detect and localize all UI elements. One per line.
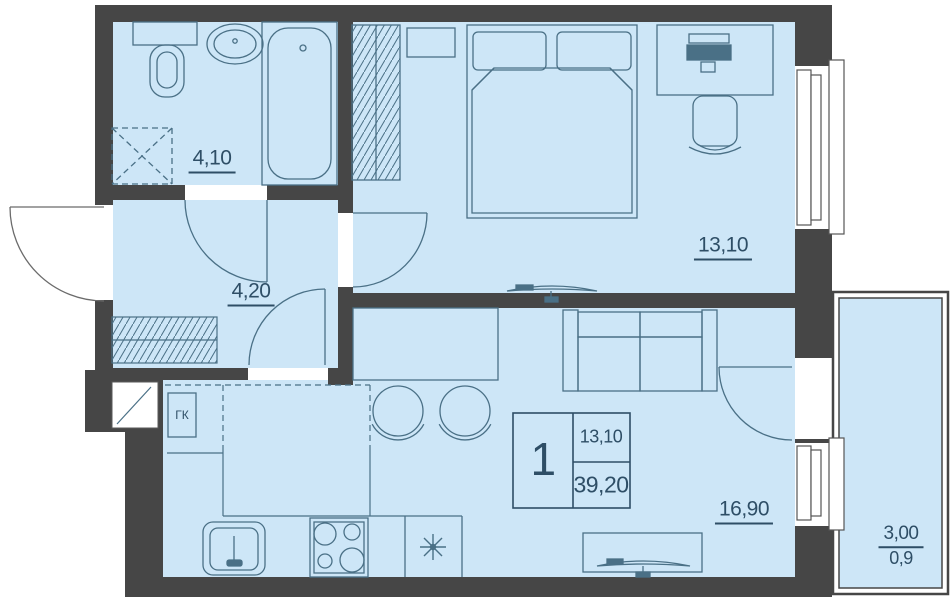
wardrobe	[352, 25, 400, 180]
living-window	[797, 438, 844, 530]
wall-top	[95, 5, 832, 22]
bathroom-door-opening	[185, 185, 267, 200]
bedroom-area-label: 13,10	[694, 234, 752, 261]
bedroom-window-sill	[829, 60, 844, 234]
info-living-area: 13,10	[580, 427, 623, 448]
wall-left-lower	[125, 432, 163, 577]
living-area-label: 16,90	[715, 498, 773, 525]
floor-plan-drawing	[0, 0, 950, 600]
hallway-living-door-opening	[248, 368, 328, 380]
wall-bedroom-living	[353, 293, 795, 308]
vent-shaft	[112, 382, 158, 428]
apartment-number: 1	[530, 432, 555, 486]
info-total-area: 39,20	[573, 472, 628, 499]
wall-left-mid	[95, 298, 113, 372]
gas-boiler-label: ГК	[175, 408, 189, 422]
floor-plan: 4,10 4,20 13,10 16,90 3,00 0,9 1 13,10 3…	[0, 0, 950, 600]
entrance-door	[10, 207, 104, 301]
wall-bottom	[125, 577, 832, 597]
entrance-opening	[95, 205, 113, 300]
window-mullion	[795, 439, 832, 443]
coat-rack	[112, 317, 217, 363]
balcony-area-label: 3,00 0,9	[879, 523, 924, 569]
living-window-sill	[829, 438, 844, 530]
wall-bathroom-bedroom	[338, 5, 353, 200]
wall-hallway-corner	[328, 368, 340, 385]
balcony-door-opening	[795, 358, 832, 440]
wall-left-upper	[95, 5, 113, 205]
bedroom-window	[797, 60, 844, 234]
bathroom-area-label: 4,10	[189, 147, 236, 174]
wall-hallway-bottom	[113, 368, 248, 380]
bedroom-door-opening	[338, 213, 353, 287]
hallway-area-label: 4,20	[228, 280, 275, 307]
